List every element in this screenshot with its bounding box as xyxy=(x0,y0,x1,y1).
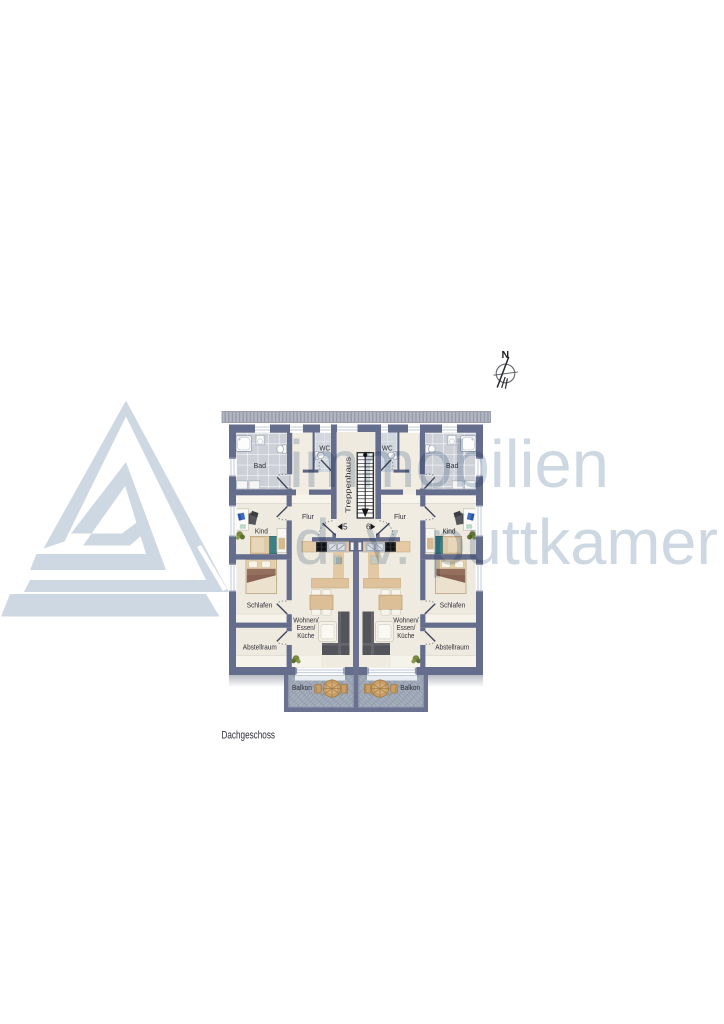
svg-text:Dachgeschoss: Dachgeschoss xyxy=(222,729,276,741)
svg-text:Balkon: Balkon xyxy=(400,683,420,692)
svg-text:immobilien: immobilien xyxy=(289,428,609,502)
svg-text:Bad: Bad xyxy=(254,461,266,470)
svg-text:Küche: Küche xyxy=(397,631,414,640)
svg-text:Schlafen: Schlafen xyxy=(440,601,466,610)
svg-text:Kind: Kind xyxy=(255,527,268,536)
svg-text:d. v. puttkamer: d. v. puttkamer xyxy=(294,506,718,578)
svg-text:Abstellraum: Abstellraum xyxy=(435,643,469,652)
svg-text:Balkon: Balkon xyxy=(292,683,312,692)
svg-text:Küche: Küche xyxy=(297,631,314,640)
svg-text:Schlafen: Schlafen xyxy=(247,601,273,610)
svg-text:Abstellraum: Abstellraum xyxy=(243,643,277,652)
